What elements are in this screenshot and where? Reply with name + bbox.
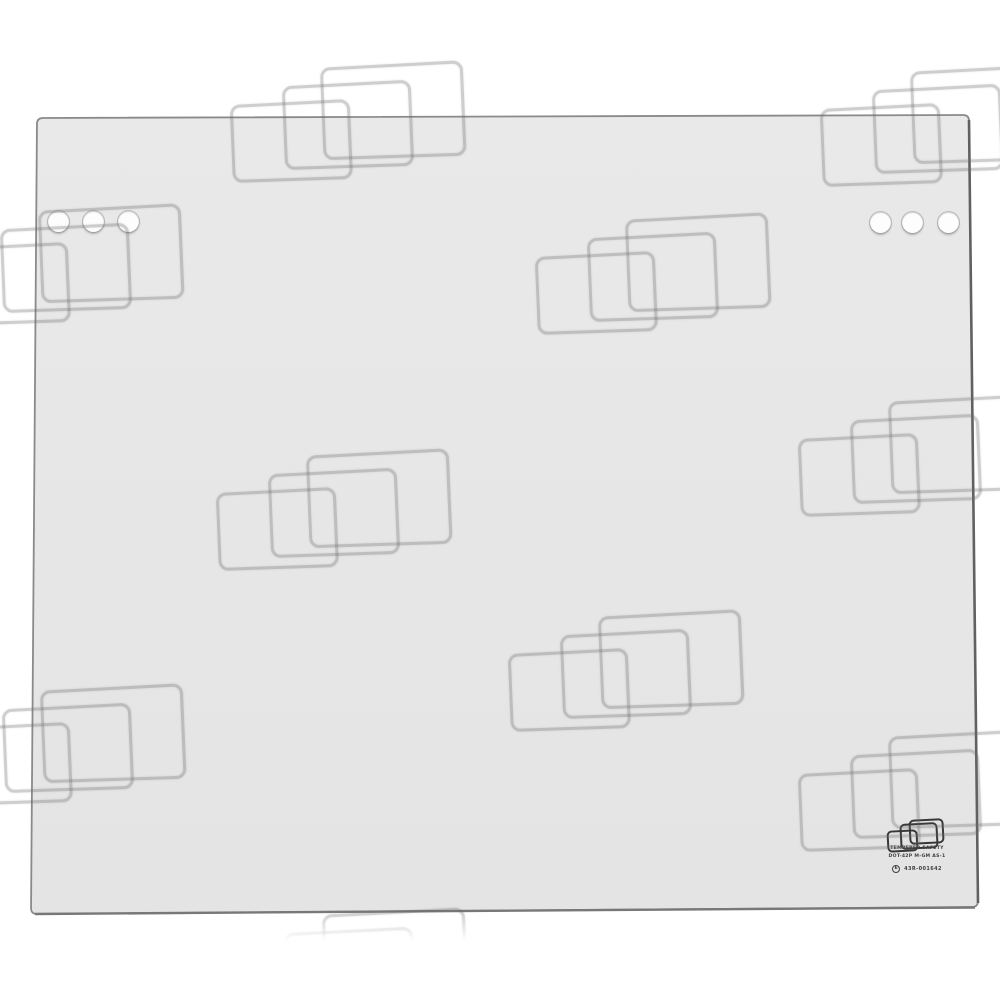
- glass-surface: [31, 115, 978, 914]
- e-mark-icon: E: [892, 865, 900, 873]
- product-photo: TEMPERED SAFETY DOT-42P M-GM AS-1 E 43R-…: [0, 0, 1000, 1000]
- glass-panel: [0, 0, 1000, 1000]
- brand-logo-rect-large: [908, 818, 944, 845]
- stamp-code: 43R-001642: [904, 867, 942, 872]
- mounting-hole: [118, 211, 139, 232]
- mounting-hole: [938, 212, 959, 233]
- stamp-line2: DOT-42P M-GM AS-1: [882, 855, 952, 860]
- mounting-hole: [902, 212, 923, 233]
- stamp-line3: E 43R-001642: [882, 865, 952, 873]
- mounting-hole: [870, 212, 891, 233]
- stamp-line1: TEMPERED SAFETY: [882, 847, 952, 852]
- mounting-hole: [48, 211, 69, 232]
- mounting-hole: [83, 211, 104, 232]
